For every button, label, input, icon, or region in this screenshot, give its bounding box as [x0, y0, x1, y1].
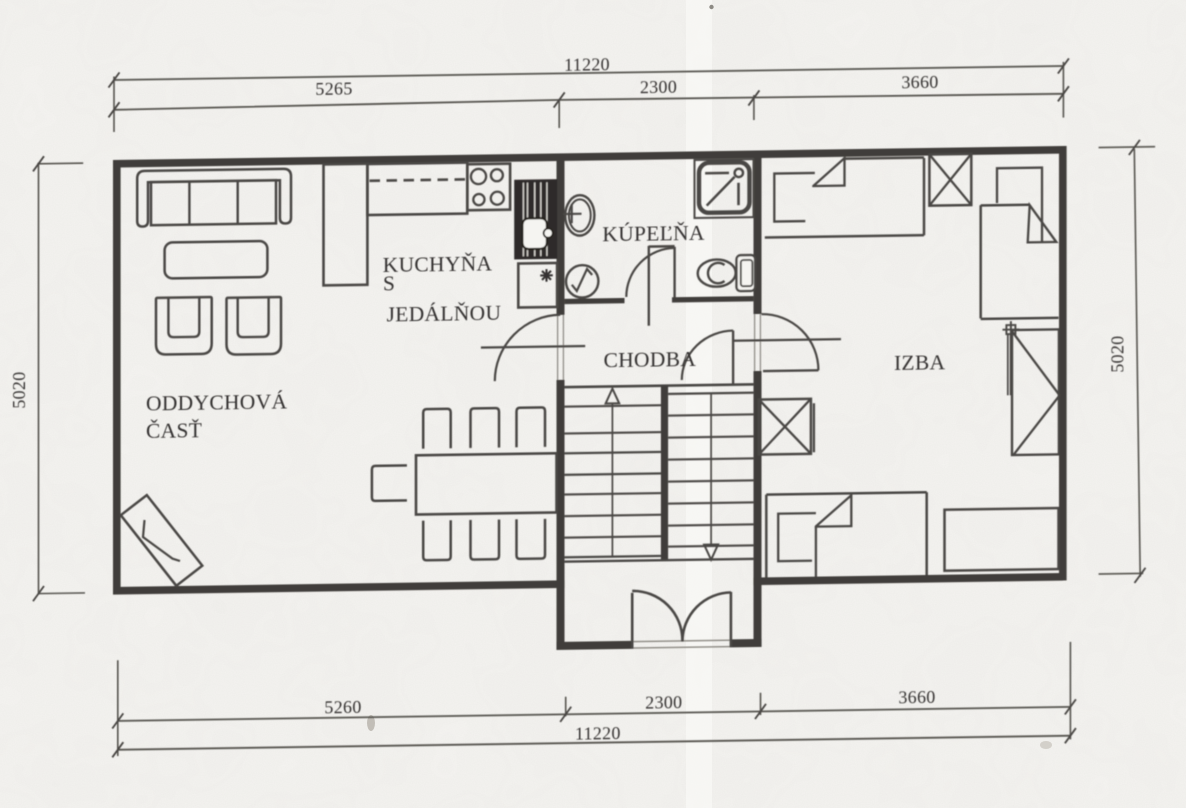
svg-text:ČASŤ: ČASŤ	[146, 418, 202, 443]
svg-text:5020: 5020	[1108, 335, 1128, 372]
svg-text:CHODBA: CHODBA	[603, 347, 696, 372]
svg-text:2300: 2300	[640, 77, 677, 98]
svg-text:5020: 5020	[9, 371, 29, 408]
svg-text:3660: 3660	[898, 687, 935, 708]
svg-text:IZBA: IZBA	[894, 350, 946, 375]
svg-text:5260: 5260	[324, 697, 361, 718]
svg-text:11220: 11220	[575, 723, 621, 744]
svg-text:ODDYCHOVÁ: ODDYCHOVÁ	[146, 390, 287, 416]
svg-text:3660: 3660	[901, 72, 938, 93]
svg-text:5265: 5265	[315, 79, 352, 100]
svg-text:2300: 2300	[645, 692, 682, 713]
svg-text:11220: 11220	[564, 54, 610, 75]
svg-text:S: S	[383, 272, 395, 296]
svg-text:KUCHYŇA: KUCHYŇA	[383, 251, 493, 277]
svg-text:JEDÁLŇOU: JEDÁLŇOU	[387, 301, 502, 327]
svg-text:KÚPEĽŇA: KÚPEĽŇA	[602, 221, 705, 247]
